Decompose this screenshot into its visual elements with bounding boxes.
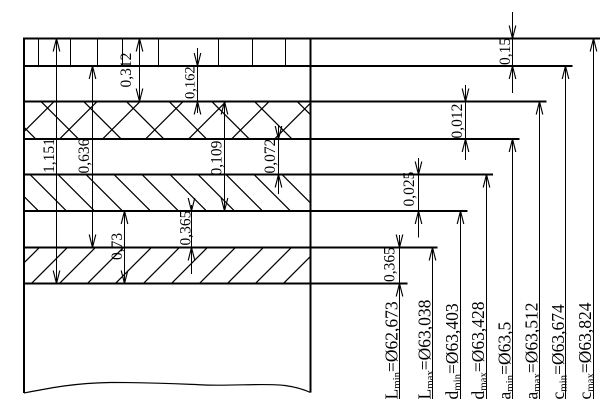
svg-text:0,162: 0,162 xyxy=(183,66,199,99)
svg-text:0,15: 0,15 xyxy=(497,38,514,65)
svg-text:0,012: 0,012 xyxy=(449,104,466,139)
svg-text:0,312: 0,312 xyxy=(118,53,135,88)
svg-text:0,636: 0,636 xyxy=(76,138,93,173)
svg-text:0,072: 0,072 xyxy=(262,139,279,174)
svg-text:0,109: 0,109 xyxy=(209,140,226,175)
svg-text:1,151: 1,151 xyxy=(41,138,58,173)
svg-text:0,025: 0,025 xyxy=(401,171,418,206)
svg-text:0,73: 0,73 xyxy=(109,233,126,260)
svg-text:0,365: 0,365 xyxy=(382,247,399,282)
svg-text:0,365: 0,365 xyxy=(178,210,195,245)
